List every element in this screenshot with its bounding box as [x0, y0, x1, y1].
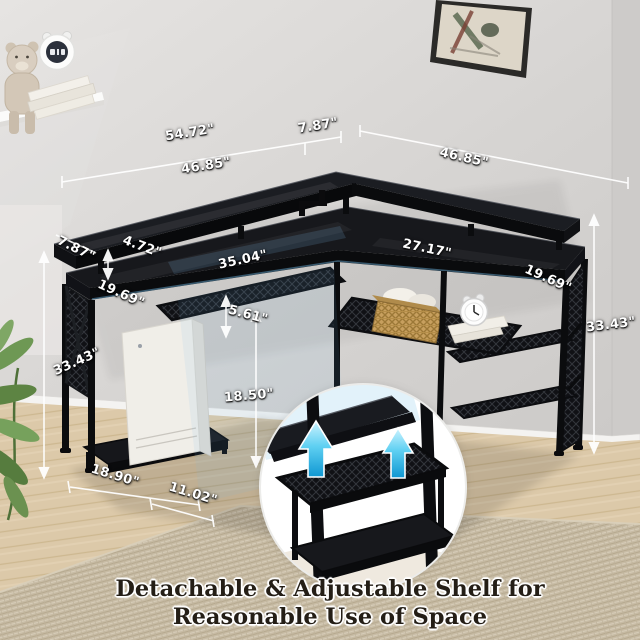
scene	[0, 0, 640, 640]
caption-line-1: Detachable & Adjustable Shelf for	[28, 575, 632, 603]
caption-line-2: Reasonable Use of Space	[28, 603, 632, 631]
product-dimension-diagram: 54.72" 7.87" 46.85" 46.85" 7.87" 4.72" 3…	[0, 0, 640, 640]
alarm-clock-wall	[40, 32, 75, 70]
caption: Detachable & Adjustable Shelf for Reason…	[28, 575, 632, 631]
